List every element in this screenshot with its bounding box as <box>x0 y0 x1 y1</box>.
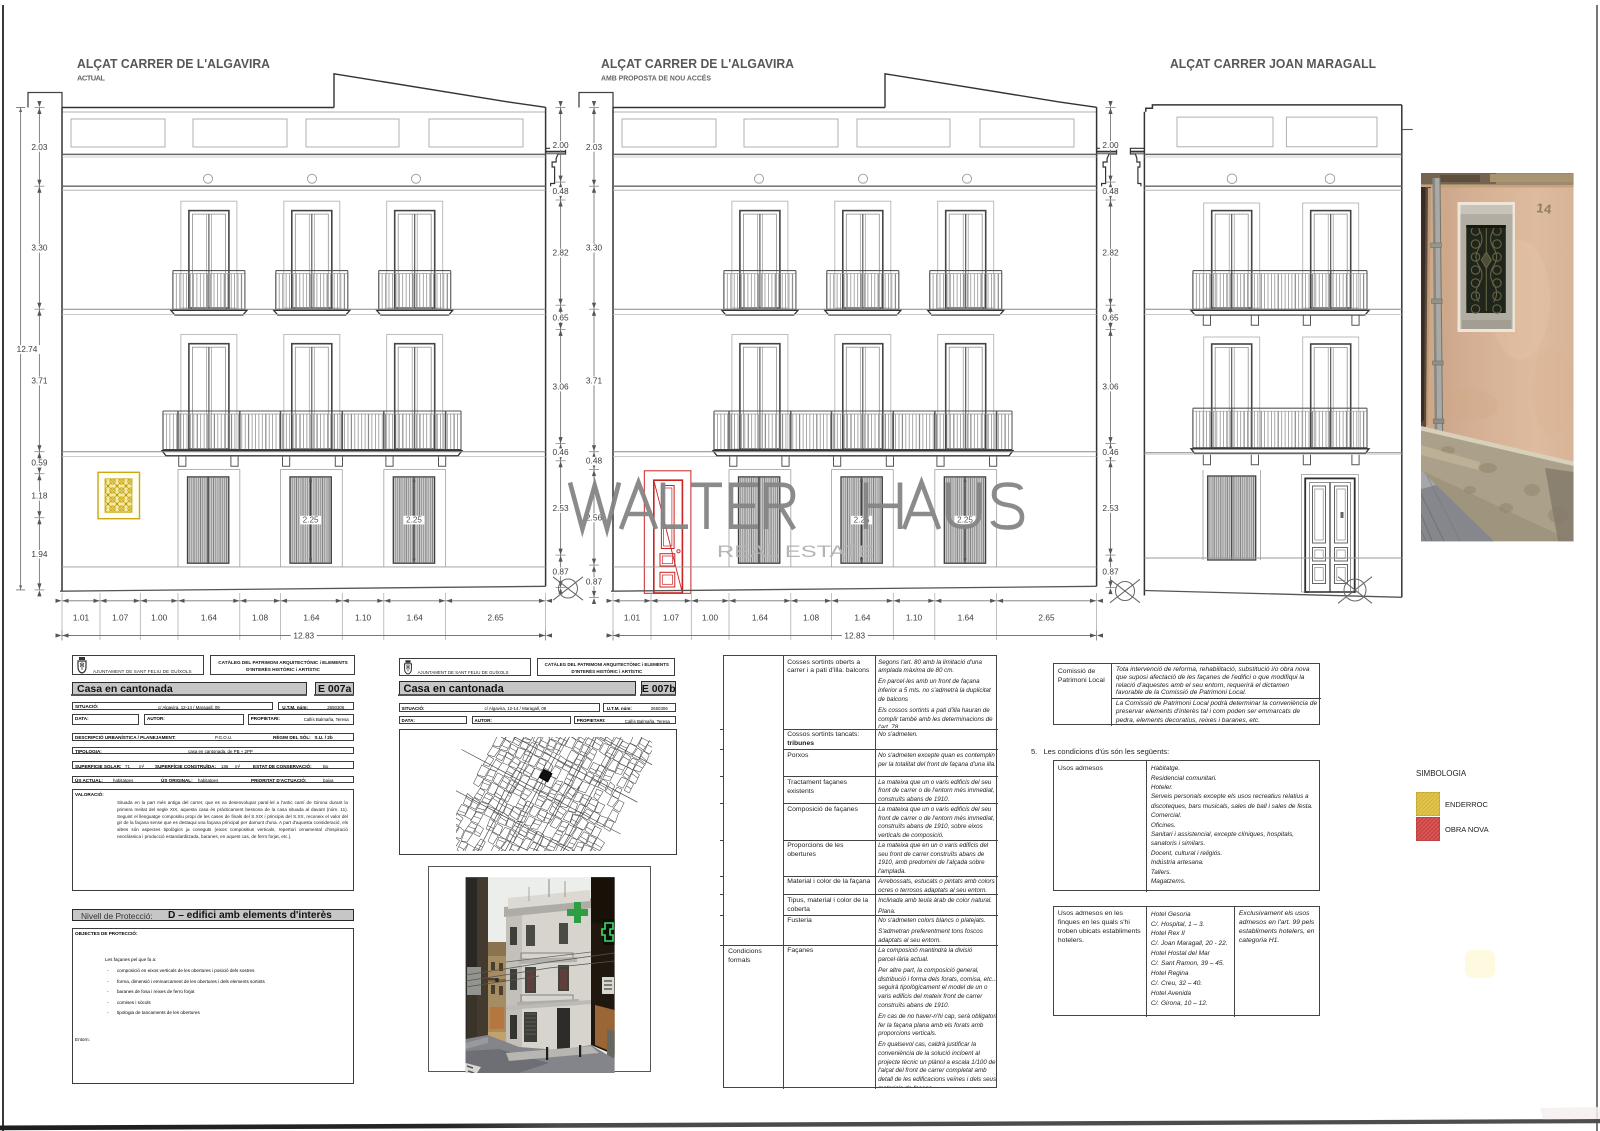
svg-text:1.64: 1.64 <box>854 612 871 622</box>
svg-text:2.65: 2.65 <box>488 612 505 622</box>
svg-text:2.65: 2.65 <box>1038 612 1055 622</box>
svg-text:2.25: 2.25 <box>303 516 319 525</box>
svg-text:2.53: 2.53 <box>553 503 570 513</box>
svg-text:12.74: 12.74 <box>17 344 38 354</box>
svg-text:2.25: 2.25 <box>406 516 422 525</box>
svg-text:2.82: 2.82 <box>553 248 570 258</box>
svg-text:2.82: 2.82 <box>1102 248 1119 258</box>
svg-text:0.87: 0.87 <box>586 576 603 586</box>
svg-text:2.03: 2.03 <box>31 142 48 152</box>
svg-text:3.71: 3.71 <box>586 375 603 385</box>
svg-text:0.48: 0.48 <box>586 456 603 466</box>
svg-text:1.08: 1.08 <box>803 612 820 622</box>
svg-text:REAL ESTATE: REAL ESTATE <box>717 543 874 561</box>
svg-text:2.00: 2.00 <box>1102 140 1119 150</box>
svg-text:2.00: 2.00 <box>553 140 570 150</box>
svg-text:AMB PROPOSTA DE NOU ACCÉS: AMB PROPOSTA DE NOU ACCÉS <box>601 74 711 83</box>
svg-text:0.59: 0.59 <box>31 458 48 468</box>
svg-text:ALÇAT CARRER JOAN MARAGALL: ALÇAT CARRER JOAN MARAGALL <box>1170 57 1376 71</box>
svg-text:0.87: 0.87 <box>1102 566 1119 576</box>
svg-text:3.06: 3.06 <box>1102 382 1119 392</box>
svg-text:3.71: 3.71 <box>31 375 48 385</box>
svg-text:3.30: 3.30 <box>31 243 48 253</box>
svg-text:c. Maragall: c. Maragall <box>569 785 581 801</box>
svg-text:2.53: 2.53 <box>1102 503 1119 513</box>
svg-text:1.64: 1.64 <box>958 612 975 622</box>
svg-text:1.64: 1.64 <box>201 612 218 622</box>
svg-text:0.48: 0.48 <box>553 186 570 196</box>
svg-text:1.07: 1.07 <box>663 612 680 622</box>
svg-text:1.64: 1.64 <box>752 612 769 622</box>
svg-text:1.64: 1.64 <box>407 612 424 622</box>
svg-text:ACTUAL: ACTUAL <box>77 74 105 83</box>
svg-text:1.00: 1.00 <box>702 612 719 622</box>
svg-text:1.01: 1.01 <box>73 612 90 622</box>
svg-text:0.46: 0.46 <box>553 447 570 457</box>
svg-text:ALÇAT CARRER DE L'ALGAVIRA: ALÇAT CARRER DE L'ALGAVIRA <box>601 57 794 71</box>
svg-text:0.65: 0.65 <box>553 312 570 322</box>
svg-text:1.07: 1.07 <box>112 612 129 622</box>
svg-text:14: 14 <box>1536 200 1553 217</box>
svg-text:12.83: 12.83 <box>293 631 314 641</box>
svg-text:0.46: 0.46 <box>1102 447 1119 457</box>
svg-text:ALÇAT CARRER DE L'ALGAVIRA: ALÇAT CARRER DE L'ALGAVIRA <box>77 57 270 71</box>
svg-text:0.87: 0.87 <box>553 566 570 576</box>
svg-text:1.10: 1.10 <box>906 612 923 622</box>
svg-text:0.65: 0.65 <box>1102 312 1119 322</box>
svg-text:0.48: 0.48 <box>1102 186 1119 196</box>
svg-text:1.18: 1.18 <box>31 491 48 501</box>
svg-text:1.10: 1.10 <box>355 612 372 622</box>
svg-text:2.25: 2.25 <box>957 516 973 525</box>
svg-text:3.30: 3.30 <box>586 243 603 253</box>
svg-text:1.08: 1.08 <box>252 612 269 622</box>
svg-text:1.00: 1.00 <box>151 612 168 622</box>
svg-text:1.64: 1.64 <box>303 612 320 622</box>
svg-text:3.06: 3.06 <box>553 382 570 392</box>
svg-text:12.83: 12.83 <box>844 631 865 641</box>
svg-text:1.01: 1.01 <box>624 612 641 622</box>
svg-text:1.94: 1.94 <box>31 549 48 559</box>
svg-text:2.03: 2.03 <box>586 142 603 152</box>
